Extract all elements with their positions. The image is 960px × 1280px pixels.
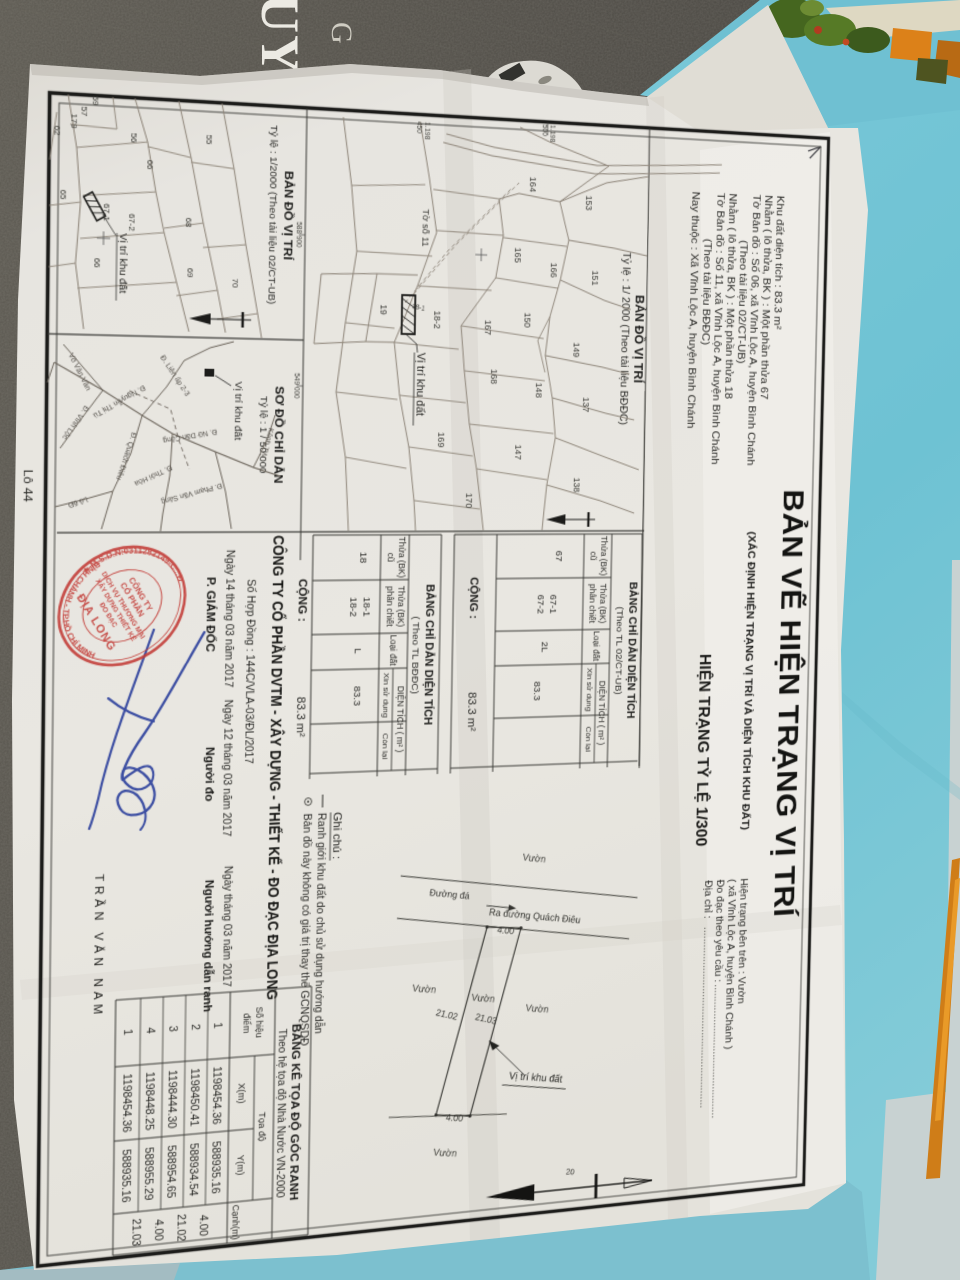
svg-text:1198450.41: 1198450.41 xyxy=(187,1068,200,1128)
svg-text:149: 149 xyxy=(571,342,581,357)
svg-text:Số Hợp Đồng : 144C/VLA-03/ĐL/2: Số Hợp Đồng : 144C/VLA-03/ĐL/2017 xyxy=(242,579,257,764)
svg-text:166: 166 xyxy=(549,263,559,279)
svg-text:Loại đất: Loại đất xyxy=(591,631,601,662)
svg-text:66: 66 xyxy=(92,258,102,269)
svg-text:Ngày 14 tháng 03 năm 2017: Ngày 14 tháng 03 năm 2017 xyxy=(222,550,235,688)
svg-text:Khu đất diện tích : 83.3 m²: Khu đất diện tích : 83.3 m² xyxy=(771,195,785,330)
svg-text:18-2: 18-2 xyxy=(348,597,358,617)
svg-text:TRẦN VĂN NAM: TRẦN VĂN NAM xyxy=(90,874,106,1019)
svg-text:Đ. Vĩnh Lộc: Đ. Vĩnh Lộc xyxy=(60,404,90,441)
svg-text:164: 164 xyxy=(528,177,538,193)
svg-text:Thửa (BK): Thửa (BK) xyxy=(598,584,608,624)
svg-text:P. GIÁM ĐỐC: P. GIÁM ĐỐC xyxy=(203,577,219,652)
svg-text:Ranh giới khu đất do chủ sử dụ: Ranh giới khu đất do chủ sử dụng hướng d… xyxy=(312,813,328,1035)
svg-text:Ra đường Quách Điêu: Ra đường Quách Điêu xyxy=(488,907,581,926)
svg-text:1198454.36: 1198454.36 xyxy=(120,1073,133,1133)
svg-text:Người đo: Người đo xyxy=(202,747,215,802)
svg-text:G: G xyxy=(325,22,358,44)
svg-text:cũ: cũ xyxy=(589,551,599,560)
svg-text:BẢNG KÊ TỌA ĐỘ GÓC RANH: BẢNG KÊ TỌA ĐỘ GÓC RANH xyxy=(287,1023,303,1201)
svg-text:Ngày 12 tháng 03 năm 2017: Ngày 12 tháng 03 năm 2017 xyxy=(220,699,233,837)
svg-text:67-1: 67-1 xyxy=(548,595,558,614)
svg-text:588954.65: 588954.65 xyxy=(164,1145,177,1199)
svg-text:Số hiệu: Số hiệu xyxy=(254,1006,265,1038)
svg-text:Vị trí khu đất: Vị trí khu đất xyxy=(413,353,426,416)
svg-text:170: 170 xyxy=(464,493,474,508)
svg-text:20: 20 xyxy=(565,1167,575,1176)
svg-text:148: 148 xyxy=(534,383,544,398)
svg-text:1.198: 1.198 xyxy=(548,125,555,143)
svg-text:BẢN ĐỒ VỊ TRÍ: BẢN ĐỒ VỊ TRÍ xyxy=(631,295,647,384)
svg-text:Tỷ lệ : 1/ 2000 (Theo tài l: Tỷ lệ : 1/ 2000 (Theo tài liệu BĐĐC) xyxy=(617,252,632,426)
svg-text:4.00: 4.00 xyxy=(497,925,515,937)
svg-text:L: L xyxy=(353,648,363,654)
svg-text:Còn lại: Còn lại xyxy=(380,733,389,759)
svg-text:151: 151 xyxy=(590,270,600,286)
svg-text:Vườn: Vườn xyxy=(471,992,496,1005)
svg-text:BẢNG CHỈ DẪN DIỆN TÍCH: BẢNG CHỈ DẪN DIỆN TÍCH xyxy=(421,584,436,725)
svg-text:Thửa (BK): Thửa (BK) xyxy=(599,536,609,576)
svg-text:83.3: 83.3 xyxy=(531,681,542,701)
svg-text:1198448.25: 1198448.25 xyxy=(142,1071,155,1131)
svg-text:67-2: 67-2 xyxy=(536,595,546,614)
svg-text:Vị trí khu đất: Vị trí khu đất xyxy=(508,1070,563,1086)
svg-text:CÔNG TY CỔ PHẦN DVTM - XÂY DỰN: CÔNG TY CỔ PHẦN DVTM - XÂY DỰNG - THIẾT … xyxy=(263,535,288,1000)
svg-text:67: 67 xyxy=(553,551,564,562)
svg-text:Thửa (BK): Thửa (BK) xyxy=(397,537,408,578)
svg-text:Còn lại: Còn lại xyxy=(584,727,593,753)
svg-text:4.00: 4.00 xyxy=(445,1112,464,1123)
svg-text:19: 19 xyxy=(378,304,388,315)
svg-text:Đường đá: Đường đá xyxy=(429,887,471,901)
svg-text:70: 70 xyxy=(230,278,240,289)
svg-text:(Theo tài liệu BĐĐC): (Theo tài liệu BĐĐC) xyxy=(699,238,712,345)
svg-text:CỘNG :: CỘNG : xyxy=(295,579,309,622)
svg-text:66: 66 xyxy=(145,160,155,171)
svg-text:138: 138 xyxy=(572,478,582,493)
svg-text:137: 137 xyxy=(581,397,591,412)
svg-text:Đ. Quách Điêu: Đ. Quách Điêu xyxy=(114,431,137,481)
svg-text:588935.16: 588935.16 xyxy=(119,1149,132,1204)
svg-text:1198454.36: 1198454.36 xyxy=(210,1066,223,1125)
svg-text:1: 1 xyxy=(121,1029,133,1036)
svg-text:168: 168 xyxy=(489,369,499,385)
svg-text:Vườn: Vườn xyxy=(432,1147,457,1159)
svg-text:Cạnh(m): Cạnh(m) xyxy=(230,1204,241,1240)
svg-text:59: 59 xyxy=(91,95,101,106)
svg-text:21.02: 21.02 xyxy=(435,1007,459,1022)
svg-text:55: 55 xyxy=(204,135,214,146)
svg-text:Vị trí khu đất: Vị trí khu đất xyxy=(116,233,129,294)
svg-text:Y(m): Y(m) xyxy=(235,1154,246,1175)
svg-text:Tỷ lệ : 1/2000 (Theo tài li: Tỷ lệ : 1/2000 (Theo tài liệu 02/CT-UB) xyxy=(265,125,279,305)
svg-text:phân chiết: phân chiết xyxy=(587,584,597,624)
svg-text:Theo hệ tọa độ Nhà Nước VN-200: Theo hệ tọa độ Nhà Nước VN-2000 xyxy=(273,1028,287,1198)
svg-text:Vị trí khu đất: Vị trí khu đất xyxy=(232,381,244,440)
svg-text:18-1: 18-1 xyxy=(411,303,426,313)
svg-text:588935.16: 588935.16 xyxy=(209,1141,222,1195)
svg-text:Vườn: Vườn xyxy=(411,983,436,996)
svg-text:Đo đạc theo yêu cầu :: Đo đạc theo yêu cầu : xyxy=(712,879,725,982)
svg-text:(Theo TL 02/CT-UB): (Theo TL 02/CT-UB) xyxy=(613,607,625,695)
svg-text:153: 153 xyxy=(584,195,594,211)
svg-text:588955.29: 588955.29 xyxy=(142,1147,155,1202)
svg-text:UY: UY xyxy=(250,0,310,76)
svg-text:56: 56 xyxy=(129,133,139,144)
svg-text:(XÁC ĐỊNH HIỆN TRẠNG VỊ TRÍ VÀ: (XÁC ĐỊNH HIỆN TRẠNG VỊ TRÍ VÀ DIỆN TÍCH… xyxy=(739,531,757,830)
svg-text:65: 65 xyxy=(58,189,68,200)
svg-text:Xin sử dụng: Xin sử dụng xyxy=(585,668,594,712)
svg-text:4: 4 xyxy=(144,1027,156,1034)
svg-text:4.00: 4.00 xyxy=(197,1214,209,1237)
svg-text:3: 3 xyxy=(166,1025,178,1032)
svg-text:Thửa (BK): Thửa (BK) xyxy=(396,586,407,627)
svg-text:68: 68 xyxy=(184,217,194,228)
svg-text:21.03: 21.03 xyxy=(129,1218,141,1247)
svg-text:69: 69 xyxy=(185,268,195,279)
svg-text:Lô 6Đ: Lô 6Đ xyxy=(67,495,89,509)
svg-text:57: 57 xyxy=(79,106,89,116)
svg-text:1.198: 1.198 xyxy=(423,122,430,140)
svg-text:..............................: ........................................… xyxy=(709,984,723,1119)
svg-text:X(m): X(m) xyxy=(236,1083,247,1104)
svg-text:179: 179 xyxy=(69,113,79,129)
svg-text:83.3 m²: 83.3 m² xyxy=(465,692,477,732)
svg-text:67-1: 67-1 xyxy=(102,203,112,222)
svg-text:147: 147 xyxy=(513,445,523,460)
svg-text:Lô 44: Lô 44 xyxy=(20,469,35,502)
svg-text:phân chiết: phân chiết xyxy=(385,586,396,627)
svg-text:1: 1 xyxy=(211,1022,223,1029)
svg-text:21.02: 21.02 xyxy=(174,1214,186,1243)
svg-text:Ghi chú :: Ghi chú : xyxy=(330,812,343,860)
svg-text:Loại đất: Loại đất xyxy=(388,635,398,667)
svg-text:BẢNG CHỈ DẪN DIỆN TÍCH: BẢNG CHỈ DẪN DIỆN TÍCH xyxy=(624,582,639,719)
svg-text:Hiện trạng bên trên : Vườn: Hiện trạng bên trên : Vườn xyxy=(735,878,748,1004)
svg-text:DIỆN TÍCH ( m² ): DIỆN TÍCH ( m² ) xyxy=(596,681,607,746)
svg-text:83.3 m²: 83.3 m² xyxy=(294,697,307,738)
svg-text:165: 165 xyxy=(513,247,523,263)
svg-text:2L: 2L xyxy=(540,642,550,653)
svg-text:Tờ số 11: Tờ số 11 xyxy=(420,209,431,247)
svg-text:450: 450 xyxy=(415,121,422,133)
svg-text:Tọa độ: Tọa độ xyxy=(257,1112,268,1142)
svg-text:18-2: 18-2 xyxy=(432,310,442,329)
svg-text:Nay thuộc : Xã Vĩnh Lộc A, huy: Nay thuộc : Xã Vĩnh Lộc A, huyện Bình Ch… xyxy=(685,191,701,428)
svg-text:HIỆN TRẠNG TỶ LỆ 1/300: HIỆN TRẠNG TỶ LỆ 1/300 xyxy=(692,654,714,847)
svg-text:62: 62 xyxy=(52,125,62,135)
svg-text:Đ. Thới Hòa: Đ. Thới Hòa xyxy=(133,463,173,487)
svg-text:Vườn: Vườn xyxy=(525,1003,550,1016)
svg-text:DIỆN TÍCH ( m² ): DIỆN TÍCH ( m² ) xyxy=(395,686,406,753)
svg-text:167: 167 xyxy=(483,320,493,336)
svg-text:điểm: điểm xyxy=(241,1013,252,1034)
svg-text:( xã Vĩnh Lộc A, huyện Bình Ch: ( xã Vĩnh Lộc A, huyện Bình Chánh ) xyxy=(723,879,738,1050)
svg-text:( Theo TL BĐĐC): ( Theo TL BĐĐC) xyxy=(409,616,421,694)
svg-text:67-2: 67-2 xyxy=(127,213,137,231)
svg-text:1198444.30: 1198444.30 xyxy=(165,1069,178,1129)
svg-text:BẢN ĐỒ VỊ TRÍ: BẢN ĐỒ VỊ TRÍ xyxy=(281,171,296,262)
svg-text:169: 169 xyxy=(436,432,446,448)
svg-text:18-1: 18-1 xyxy=(361,597,371,617)
svg-text:2: 2 xyxy=(189,1024,201,1031)
svg-text:BẢN VẼ HIỆN TRẠNG VỊ TRÍ: BẢN VẼ HIỆN TRẠNG VỊ TRÍ xyxy=(768,489,810,918)
svg-text:cũ: cũ xyxy=(386,553,396,563)
svg-text:83.3: 83.3 xyxy=(351,686,362,706)
svg-text:Xin sử dụng: Xin sử dụng xyxy=(381,673,391,718)
svg-text:Vườn: Vườn xyxy=(522,852,547,865)
svg-text:CỘNG :: CỘNG : xyxy=(467,577,480,619)
svg-text:Đ. Phạm Văn Sáng: Đ. Phạm Văn Sáng xyxy=(160,481,223,505)
svg-text:Ngày tháng 03 năm 2017: Ngày tháng 03 năm 2017 xyxy=(220,866,233,988)
svg-text:18: 18 xyxy=(357,552,368,563)
svg-text:500: 500 xyxy=(541,124,548,136)
svg-text:4.00: 4.00 xyxy=(152,1219,164,1242)
svg-text:Địa chỉ :: Địa chỉ : xyxy=(702,880,714,919)
svg-text:21.03: 21.03 xyxy=(474,1012,498,1027)
svg-text:588934.54: 588934.54 xyxy=(186,1143,199,1197)
svg-text:150: 150 xyxy=(522,312,532,328)
